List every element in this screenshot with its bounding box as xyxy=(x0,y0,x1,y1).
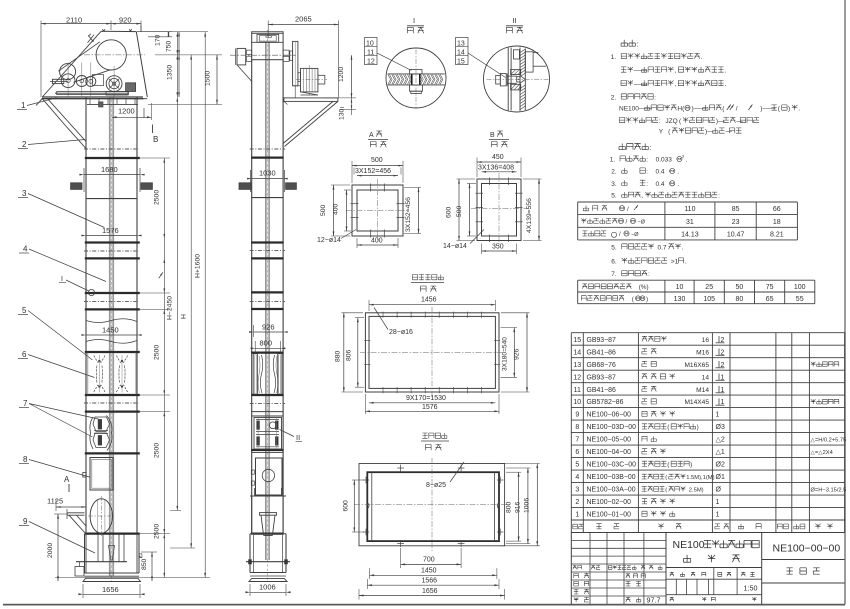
svg-text:14−ø14: 14−ø14 xyxy=(443,243,467,250)
svg-text:1125: 1125 xyxy=(47,497,63,506)
svg-text:Ø1: Ø1 xyxy=(716,474,725,481)
svg-text:1566: 1566 xyxy=(422,578,438,585)
svg-text:1656: 1656 xyxy=(422,588,438,595)
svg-text:GB68−76: GB68−76 xyxy=(587,362,616,369)
svg-text:6: 6 xyxy=(22,350,27,359)
svg-text:9: 9 xyxy=(575,412,579,419)
svg-text:II: II xyxy=(296,433,300,442)
svg-text:450: 450 xyxy=(492,154,504,161)
svg-text:4: 4 xyxy=(23,245,28,254)
svg-text:8.21: 8.21 xyxy=(770,231,784,238)
svg-text:3X152=456: 3X152=456 xyxy=(405,197,412,232)
svg-text::: : xyxy=(718,193,720,200)
svg-text:80: 80 xyxy=(736,296,744,303)
svg-text:B: B xyxy=(153,135,158,144)
svg-text:JZQ: JZQ xyxy=(665,118,677,125)
svg-text:130: 130 xyxy=(339,108,346,120)
svg-text:1: 1 xyxy=(721,399,725,406)
svg-text:9X170=1530: 9X170=1530 xyxy=(406,395,446,402)
svg-text:55: 55 xyxy=(796,296,804,303)
svg-text:350: 350 xyxy=(492,244,504,251)
svg-text:28−ø16: 28−ø16 xyxy=(389,329,413,336)
svg-text:2.: 2. xyxy=(611,169,617,176)
svg-text:−Ø: −Ø xyxy=(638,220,646,226)
svg-text:800: 800 xyxy=(506,501,513,513)
svg-text:I: I xyxy=(61,276,63,283)
svg-text:1: 1 xyxy=(716,412,720,419)
svg-text:)——: )—— xyxy=(760,106,776,113)
svg-text:1576: 1576 xyxy=(102,226,119,235)
svg-text:——: —— xyxy=(634,68,648,75)
svg-text:500: 500 xyxy=(456,205,463,217)
svg-text:H−2450: H−2450 xyxy=(167,296,174,320)
svg-text:1030: 1030 xyxy=(259,169,276,178)
svg-text:806: 806 xyxy=(346,349,353,361)
svg-text:1: 1 xyxy=(21,101,26,110)
svg-text:2000: 2000 xyxy=(47,543,54,558)
svg-text:0.4: 0.4 xyxy=(656,169,665,176)
svg-text:Ø: Ø xyxy=(716,487,722,494)
svg-text:12: 12 xyxy=(367,59,375,66)
svg-text:110: 110 xyxy=(684,206,695,213)
svg-text:1: 1 xyxy=(721,374,725,381)
svg-text:6: 6 xyxy=(575,449,579,456)
svg-text:/: / xyxy=(736,106,738,113)
svg-text:2: 2 xyxy=(721,362,725,369)
svg-text:NE100−04−00: NE100−04−00 xyxy=(587,449,632,456)
svg-text:I: I xyxy=(413,16,415,25)
svg-text:0.033: 0.033 xyxy=(656,157,673,164)
svg-text:2: 2 xyxy=(721,349,725,356)
svg-text:△=△2X4: △=△2X4 xyxy=(811,450,833,456)
svg-text:/: / xyxy=(626,219,628,226)
svg-text:): ) xyxy=(690,462,692,469)
svg-text:H+1600: H+1600 xyxy=(195,254,202,278)
svg-text:100: 100 xyxy=(794,284,806,291)
svg-text:7.: 7. xyxy=(611,271,617,278)
svg-text:1.5M),1(M): 1.5M),1(M) xyxy=(686,475,714,481)
svg-text:12: 12 xyxy=(573,374,581,381)
svg-text:Ø3: Ø3 xyxy=(716,424,725,431)
svg-text:>1: >1 xyxy=(671,259,679,266)
svg-text:GB41−86: GB41−86 xyxy=(587,349,616,356)
svg-text:M16X65: M16X65 xyxy=(684,362,709,369)
svg-text:0.4: 0.4 xyxy=(656,181,665,188)
svg-text:7: 7 xyxy=(23,399,28,408)
svg-text::: : xyxy=(654,94,656,101)
svg-text:25: 25 xyxy=(705,284,713,291)
svg-text:(: ( xyxy=(665,488,667,494)
svg-text:1: 1 xyxy=(716,499,720,506)
svg-text:16: 16 xyxy=(702,337,710,344)
svg-text:66: 66 xyxy=(773,206,781,213)
svg-text:750: 750 xyxy=(166,40,173,52)
svg-text:2110: 2110 xyxy=(66,16,82,25)
svg-text:1500: 1500 xyxy=(205,71,212,86)
svg-text:500: 500 xyxy=(371,157,383,164)
svg-text:1.: 1. xyxy=(610,157,616,164)
svg-text:−Ø: −Ø xyxy=(631,232,639,238)
svg-text:65: 65 xyxy=(766,296,774,303)
svg-text:NE100−03D−00: NE100−03D−00 xyxy=(587,424,637,431)
svg-text:1:50: 1:50 xyxy=(744,584,758,593)
svg-text:12−ø14: 12−ø14 xyxy=(317,237,341,244)
svg-text:/: / xyxy=(627,206,629,213)
svg-text:500: 500 xyxy=(320,204,327,216)
svg-text:NE100−00−00: NE100−00−00 xyxy=(773,543,841,555)
svg-text:—: — xyxy=(726,129,733,136)
svg-text:4: 4 xyxy=(575,474,579,481)
svg-text:2500: 2500 xyxy=(154,524,161,539)
svg-text:18: 18 xyxy=(773,219,781,226)
svg-text:1200: 1200 xyxy=(118,107,135,116)
svg-text:3: 3 xyxy=(22,189,27,198)
svg-text:600: 600 xyxy=(343,500,350,512)
svg-text:): ) xyxy=(646,296,648,303)
svg-text:.: . xyxy=(685,157,687,164)
svg-text:II: II xyxy=(512,16,516,25)
svg-text:3X136=408: 3X136=408 xyxy=(478,165,514,172)
svg-text:△=H/0.2+5.75: △=H/0.2+5.75 xyxy=(811,438,847,444)
svg-text:(: ( xyxy=(665,475,667,481)
svg-text:5: 5 xyxy=(22,306,27,315)
svg-text:.: . xyxy=(682,244,684,251)
svg-text:3X152=456: 3X152=456 xyxy=(355,168,391,175)
svg-text:1680: 1680 xyxy=(101,165,118,174)
svg-text:10.47: 10.47 xyxy=(727,231,745,238)
svg-text:2.5M): 2.5M) xyxy=(689,488,704,494)
svg-text:8: 8 xyxy=(575,424,579,431)
svg-text:8: 8 xyxy=(23,455,28,464)
svg-text:△1: △1 xyxy=(716,449,725,456)
svg-text:97.7: 97.7 xyxy=(647,596,661,605)
svg-text:NE100−03A−00: NE100−03A−00 xyxy=(587,487,636,494)
svg-text:600: 600 xyxy=(446,206,453,218)
svg-text:5.: 5. xyxy=(611,193,617,200)
svg-text:880: 880 xyxy=(335,350,342,362)
svg-text:.: . xyxy=(685,259,687,266)
svg-text:1576: 1576 xyxy=(422,404,438,411)
svg-text:B: B xyxy=(490,132,495,139)
svg-text:M14: M14 xyxy=(696,387,709,394)
svg-text:2.: 2. xyxy=(611,94,617,101)
svg-text:1450: 1450 xyxy=(102,326,119,335)
svg-text:(%): (%) xyxy=(639,284,649,291)
svg-text:NE100−03B−00: NE100−03B−00 xyxy=(587,474,636,481)
svg-text:10: 10 xyxy=(573,399,581,406)
svg-text:NE100−06−00: NE100−06−00 xyxy=(587,412,632,419)
svg-text:NE100−05−00: NE100−05−00 xyxy=(587,437,632,444)
svg-text:5: 5 xyxy=(575,462,579,469)
svg-text:10: 10 xyxy=(676,284,684,291)
svg-text:GB5782−86: GB5782−86 xyxy=(587,399,624,406)
svg-text:400: 400 xyxy=(333,203,340,215)
svg-text:2500: 2500 xyxy=(154,190,161,205)
svg-text::: : xyxy=(646,169,648,176)
svg-text:NE100−01−00: NE100−01−00 xyxy=(587,512,632,519)
svg-text:13: 13 xyxy=(573,362,581,369)
svg-text:850: 850 xyxy=(141,558,148,570)
svg-text::: : xyxy=(646,181,648,188)
svg-text:800: 800 xyxy=(260,339,273,348)
svg-text:0.7: 0.7 xyxy=(658,244,667,251)
svg-text:,: , xyxy=(674,81,676,88)
svg-text:NE100−02−00: NE100−02−00 xyxy=(587,499,632,506)
svg-text:): ) xyxy=(697,424,699,431)
svg-text:.: . xyxy=(677,181,679,188)
svg-text:1: 1 xyxy=(721,387,725,394)
svg-text:H(: H( xyxy=(677,106,685,113)
svg-text:8−ø25: 8−ø25 xyxy=(426,482,446,489)
svg-text:5.: 5. xyxy=(611,244,617,251)
svg-text:920: 920 xyxy=(119,16,132,25)
svg-text:916: 916 xyxy=(515,501,522,513)
svg-text:1350: 1350 xyxy=(167,65,174,80)
svg-text::: : xyxy=(649,143,651,152)
svg-text:GB41−86: GB41−86 xyxy=(587,387,616,394)
svg-text:926: 926 xyxy=(514,348,521,360)
svg-text::: : xyxy=(659,118,661,125)
svg-text:14.13: 14.13 xyxy=(681,231,699,238)
svg-text:14: 14 xyxy=(573,349,581,356)
svg-text:.: . xyxy=(701,54,703,61)
svg-text:,: , xyxy=(674,68,676,75)
svg-text:31: 31 xyxy=(686,219,694,226)
svg-text:15: 15 xyxy=(457,59,465,66)
svg-text:4X139=556: 4X139=556 xyxy=(526,198,533,233)
svg-text:400: 400 xyxy=(371,238,383,245)
svg-text:75: 75 xyxy=(766,284,774,291)
svg-text:105: 105 xyxy=(703,296,715,303)
svg-text:)—: )— xyxy=(716,118,725,125)
svg-text:1456: 1456 xyxy=(421,297,437,304)
svg-text:NE100−03C−00: NE100−03C−00 xyxy=(587,462,637,469)
svg-text::: : xyxy=(636,40,638,49)
svg-text:130: 130 xyxy=(674,296,686,303)
svg-text:2065: 2065 xyxy=(295,15,312,24)
svg-text:2: 2 xyxy=(721,337,725,344)
svg-text:M14X45: M14X45 xyxy=(684,399,709,406)
svg-text:926: 926 xyxy=(262,323,275,332)
svg-text::: : xyxy=(648,271,650,278)
svg-text:170: 170 xyxy=(155,34,162,46)
svg-text:23: 23 xyxy=(732,219,740,226)
svg-text:2: 2 xyxy=(575,499,579,506)
svg-text:/: / xyxy=(619,231,621,238)
svg-text:1: 1 xyxy=(575,512,579,519)
svg-text:11: 11 xyxy=(574,387,581,394)
svg-text:9: 9 xyxy=(23,517,28,526)
svg-text:15: 15 xyxy=(573,337,581,344)
svg-text:1.: 1. xyxy=(611,54,617,61)
svg-text:—: — xyxy=(736,118,743,125)
svg-text:.: . xyxy=(725,68,727,75)
svg-text:6.: 6. xyxy=(611,259,617,266)
svg-text:1200: 1200 xyxy=(338,67,345,82)
svg-text:.: . xyxy=(725,81,727,88)
svg-text:A: A xyxy=(369,132,374,139)
svg-text:H: H xyxy=(181,314,188,319)
svg-text:14: 14 xyxy=(702,374,710,381)
svg-text:GB93−87: GB93−87 xyxy=(587,337,616,344)
svg-text:700: 700 xyxy=(423,557,435,564)
svg-text:3: 3 xyxy=(575,487,579,494)
svg-text:1656: 1656 xyxy=(102,585,119,594)
svg-text:Ø=H−3.15/2.5: Ø=H−3.15/2.5 xyxy=(811,488,847,494)
svg-text:.: . xyxy=(677,169,679,176)
svg-text:1: 1 xyxy=(716,512,720,519)
svg-text:): ) xyxy=(788,106,790,113)
svg-text:2: 2 xyxy=(22,140,27,149)
svg-text:1006: 1006 xyxy=(524,498,531,513)
svg-text:A: A xyxy=(64,475,70,484)
svg-text:1006: 1006 xyxy=(259,583,276,592)
svg-text:3.: 3. xyxy=(611,181,617,188)
svg-text:.: . xyxy=(798,106,800,113)
svg-text:GB93−87: GB93−87 xyxy=(587,374,616,381)
svg-text:——: —— xyxy=(634,81,648,88)
svg-text:50: 50 xyxy=(736,284,744,291)
svg-text:△2: △2 xyxy=(716,437,725,444)
svg-text:M16: M16 xyxy=(696,349,709,356)
svg-text:3X180=540: 3X180=540 xyxy=(502,337,509,371)
svg-text:Y: Y xyxy=(659,129,664,136)
svg-text:,: , xyxy=(641,193,643,200)
svg-text:NE100: NE100 xyxy=(673,539,705,551)
svg-text:85: 85 xyxy=(732,206,740,213)
svg-text:2500: 2500 xyxy=(154,443,161,458)
svg-text:Ø2: Ø2 xyxy=(716,462,725,469)
svg-text:2500: 2500 xyxy=(154,345,161,360)
svg-text:)——: )—— xyxy=(692,106,708,113)
svg-text:7: 7 xyxy=(575,437,579,444)
svg-text::: : xyxy=(646,157,648,164)
svg-text:1450: 1450 xyxy=(421,568,437,575)
